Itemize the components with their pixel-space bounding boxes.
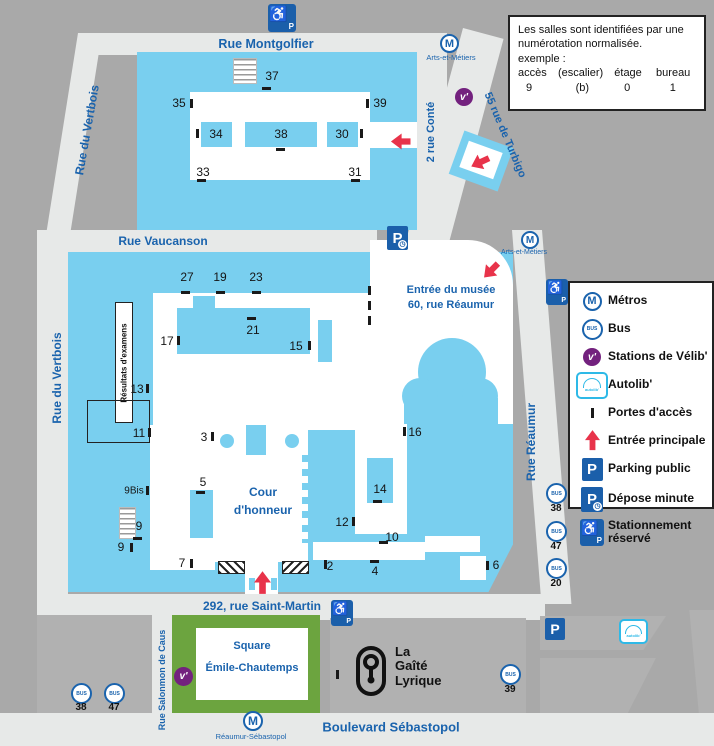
legend-row-stationnement: ♿P Stationnement réservé <box>576 519 708 545</box>
access-door-icon <box>368 301 371 310</box>
musee-label-line2: 60, rue Réaumur <box>407 298 496 313</box>
clock-glyph: ◷ <box>398 240 407 249</box>
access-number-27: 27 <box>180 270 193 284</box>
access-door-icon <box>368 286 371 295</box>
legend-row-portes: Portes d'accès <box>576 401 708 425</box>
autolib-text: autolib' <box>585 388 599 392</box>
bus-icon-20: BUS <box>546 558 567 579</box>
info-col-bureau: bureau <box>656 66 696 80</box>
court-crenellation <box>302 455 309 543</box>
bus-number-39: 39 <box>504 684 515 695</box>
access-door-icon <box>486 561 489 570</box>
access-door-icon <box>276 148 285 151</box>
info-line1: Les salles sont identifiées par une <box>518 23 696 37</box>
access-door-icon <box>190 99 193 108</box>
access-door-icon <box>148 428 151 437</box>
gaite-label-line3: Lyrique <box>395 674 441 688</box>
velib-icon: v' <box>455 88 473 106</box>
access-door-icon <box>368 316 371 325</box>
bus-number-47-bl: 47 <box>108 702 119 713</box>
depose-minute-icon: P ◷ <box>387 226 408 250</box>
access-number-35: 35 <box>172 96 185 110</box>
street-label-salomon: Rue Salonmon de Caus <box>157 630 167 731</box>
parking-letter: P <box>597 536 602 545</box>
gaite-lyrique-label: La Gaîté Lyrique <box>395 645 441 688</box>
access-door-icon <box>196 491 205 494</box>
square-label: Square Émile-Chautemps <box>206 635 299 679</box>
access-door-icon <box>177 336 180 345</box>
clock-glyph: ◷ <box>593 502 602 511</box>
legend: M Métros BUS Bus v' Stations de Vélib' a… <box>568 281 714 509</box>
access-door-icon <box>196 129 199 138</box>
access-door-icon <box>211 432 214 441</box>
access-door-icon <box>360 129 363 138</box>
access-number-31: 31 <box>348 165 361 179</box>
square-label-line2: Émile-Chautemps <box>206 657 299 679</box>
info-val-bureau: 1 <box>656 81 696 95</box>
autolib-text: autolib' <box>626 634 640 638</box>
musee-dome-base <box>404 398 498 424</box>
legend-row-autolib: autolib' Autolib' <box>576 373 708 397</box>
parking-public-icon: P <box>545 618 565 640</box>
bus-icon-47: BUS <box>546 521 567 542</box>
strip-east <box>425 536 480 552</box>
handicap-parking-icon: ♿ P <box>331 600 353 626</box>
access-door-icon <box>133 537 142 540</box>
street-label-conte: 2 rue Conté <box>425 102 437 163</box>
bus-icon: BUS <box>582 319 603 340</box>
access-door-icon <box>336 670 339 679</box>
legend-label: Métros <box>608 294 647 307</box>
wheelchair-glyph: ♿ <box>269 4 288 25</box>
access-number-3: 3 <box>201 430 208 444</box>
hatched-zone-left <box>218 561 245 574</box>
info-col-escalier: (escalier) <box>558 66 614 80</box>
info-col-acces: accès <box>518 66 558 80</box>
wheelchair-glyph: ♿ <box>547 279 563 297</box>
resultats-examens-label: Résultats d'examens <box>120 323 129 402</box>
metro-icon-reaumur-sebastopol: M <box>243 711 263 731</box>
info-line2: numérotation normalisée. <box>518 37 696 51</box>
hatched-zone-right <box>282 561 309 574</box>
access-door-icon <box>216 291 225 294</box>
access-number-6: 6 <box>493 558 500 572</box>
access-number-19: 19 <box>213 270 226 284</box>
access-door-icon <box>352 517 355 526</box>
access-number-11: 11 <box>133 426 145 440</box>
depose-minute-icon: P◷ <box>581 487 603 512</box>
handicap-parking-icon: ♿ P <box>268 4 296 32</box>
bus-icon-38-bl: BUS <box>71 683 92 704</box>
autolib-icon: autolib' <box>576 372 608 399</box>
legend-row-velib: v' Stations de Vélib' <box>576 345 708 369</box>
gaite-label-line2: Gaîté <box>395 659 441 673</box>
legend-label: Dépose minute <box>608 492 694 505</box>
metro-icon-arts-top: M <box>440 34 459 53</box>
access-number-13: 13 <box>130 382 143 396</box>
cour-label-line1: Cour <box>234 483 292 501</box>
bus-number-47: 47 <box>550 541 561 552</box>
metro-label-arts-top: Arts-et-Métiers <box>426 53 475 62</box>
campus-map: Résultats d'examens 37 35 39 34 38 30 33… <box>0 0 714 746</box>
legend-label: Parking public <box>608 462 691 475</box>
access-door-icon <box>366 99 369 108</box>
access-door-icon <box>146 486 149 495</box>
street-label-sebastopol: Boulevard Sébastopol <box>322 720 459 735</box>
legend-row-bus: BUS Bus <box>576 317 708 341</box>
legend-label: Stations de Vélib' <box>608 350 708 363</box>
access-number-21: 21 <box>246 323 259 337</box>
street-label-vaucanson: Rue Vaucanson <box>118 234 207 248</box>
access-door-icon <box>181 291 190 294</box>
access-door-icon <box>197 179 206 182</box>
access-number-16: 16 <box>408 425 421 439</box>
court-tower-right <box>285 434 299 448</box>
legend-label: Portes d'accès <box>608 406 692 419</box>
parking-letter: P <box>346 618 351 625</box>
access-door-icon <box>190 559 193 568</box>
bus-number-38-bl: 38 <box>75 702 86 713</box>
info-values: 9 (b) 0 1 <box>518 81 696 95</box>
building-5 <box>190 490 213 538</box>
musee-label: Entrée du musée 60, rue Réaumur <box>407 283 496 313</box>
stairs-icon-west <box>119 507 136 539</box>
metro-label-reaumur-sebastopol: Réaumur-Sébastopol <box>216 732 287 741</box>
street-label-saint-martin: 292, rue Saint-Martin <box>203 599 321 613</box>
legend-label: Stationnement réservé <box>608 519 708 545</box>
strip-10 <box>313 542 425 560</box>
access-door-icon <box>351 179 360 182</box>
legend-label: Autolib' <box>608 378 652 391</box>
autolib-icon: autolib' <box>619 619 648 644</box>
info-val-etage: 0 <box>614 81 656 95</box>
handicap-parking-icon: ♿P <box>580 519 604 546</box>
access-number-34: 34 <box>209 127 222 141</box>
access-number-14: 14 <box>373 482 386 496</box>
musee-label-line1: Entrée du musée <box>407 283 496 298</box>
info-col-etage: étage <box>614 66 656 80</box>
court-tower-left <box>220 434 234 448</box>
court-apse <box>246 425 266 455</box>
access-door-icon <box>403 427 406 436</box>
block-right-sliver <box>676 610 714 713</box>
entrance-post-right <box>271 578 277 590</box>
velib-icon-square: v' <box>174 667 193 686</box>
street-vertbois-top <box>46 33 102 235</box>
handicap-parking-icon: ♿ P <box>546 279 568 305</box>
legend-label: Bus <box>608 322 631 335</box>
gaite-label-line1: La <box>395 645 441 659</box>
entrance-arrow-icon <box>391 134 420 150</box>
gap-6 <box>460 556 486 580</box>
bus-number-38: 38 <box>550 503 561 514</box>
access-number-23: 23 <box>249 270 262 284</box>
bus-icon-47-bl: BUS <box>104 683 125 704</box>
metro-icon: M <box>583 292 602 311</box>
legend-row-metros: M Métros <box>576 289 708 313</box>
legend-row-entree: Entrée principale <box>576 429 708 453</box>
access-door-icon <box>308 341 311 350</box>
access-number-7: 7 <box>179 556 186 570</box>
legend-row-depose: P◷ Dépose minute <box>576 487 708 511</box>
building-14 <box>367 458 393 503</box>
room-numbering-info-box: Les salles sont identifiées par une numé… <box>508 15 706 111</box>
access-number-12: 12 <box>335 515 348 529</box>
legend-label: Entrée principale <box>608 434 705 447</box>
access-number-9a: 9 <box>136 519 143 533</box>
parking-letter: P <box>289 22 294 31</box>
main-entrance-arrow-icon <box>254 570 271 602</box>
info-val-escalier: (b) <box>558 81 615 95</box>
bus-icon-38: BUS <box>546 483 567 504</box>
metro-label-arts-right: Arts-et-Métiers <box>501 249 547 256</box>
info-val-acces: 9 <box>518 81 558 95</box>
street-label-reaumur: Rue Réaumur <box>524 403 538 481</box>
info-columns: accès (escalier) étage bureau <box>518 66 696 80</box>
access-number-33: 33 <box>196 165 209 179</box>
bus-number-20: 20 <box>550 578 561 589</box>
street-label-montgolfier: Rue Montgolfier <box>218 37 313 51</box>
access-number-17: 17 <box>160 334 173 348</box>
access-door-icon <box>252 291 261 294</box>
stairs-icon <box>233 58 257 84</box>
square-label-line1: Square <box>206 635 299 657</box>
building-15 <box>318 320 332 362</box>
access-number-5: 5 <box>200 475 207 489</box>
info-line3: exemple : <box>518 52 696 66</box>
access-door-icon <box>247 317 256 320</box>
metro-icon-arts-right: M <box>521 231 539 249</box>
access-number-4: 4 <box>372 564 379 578</box>
access-number-38: 38 <box>274 127 287 141</box>
access-door-icon <box>370 560 379 563</box>
cour-honneur-label: Cour d'honneur <box>234 483 292 519</box>
access-number-30: 30 <box>335 127 348 141</box>
velib-icon: v' <box>583 348 601 366</box>
parking-icon: P <box>582 458 603 481</box>
block-right-lower <box>540 658 662 713</box>
access-door-icon <box>373 500 382 503</box>
legend-row-parking: P Parking public <box>576 457 708 481</box>
access-door-icon <box>130 543 133 552</box>
gaite-lyrique-logo-icon <box>355 646 387 701</box>
cour-label-line2: d'honneur <box>234 501 292 519</box>
access-number-10: 10 <box>385 530 398 544</box>
entrance-arrow-icon <box>585 430 600 452</box>
access-number-37: 37 <box>265 69 278 83</box>
wheelchair-glyph: ♿ <box>332 600 348 618</box>
access-number-9bis: 9Bis <box>124 486 143 497</box>
access-door-icon <box>146 384 149 393</box>
street-label-vertbois-left: Rue du Vertbois <box>50 332 64 423</box>
access-number-39: 39 <box>373 96 386 110</box>
access-number-15: 15 <box>289 339 302 353</box>
bus-icon-39: BUS <box>500 664 521 685</box>
block-bottom-left <box>37 615 152 713</box>
parking-letter: P <box>561 297 566 304</box>
access-door-icon <box>591 408 594 418</box>
access-number-9b: 9 <box>118 540 125 554</box>
access-number-2: 2 <box>327 559 334 573</box>
access-door-icon <box>262 87 271 90</box>
